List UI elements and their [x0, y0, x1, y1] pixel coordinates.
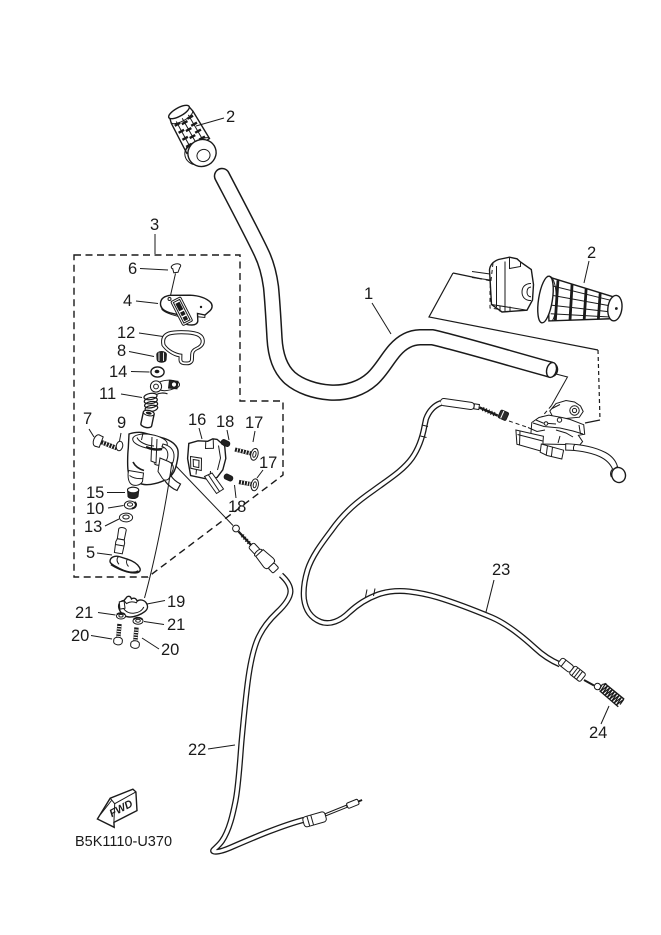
svg-text:10: 10 [86, 500, 104, 518]
svg-text:18: 18 [228, 498, 246, 516]
svg-text:8: 8 [117, 342, 126, 360]
svg-text:23: 23 [492, 561, 510, 579]
svg-text:4: 4 [123, 292, 132, 310]
svg-text:20: 20 [161, 641, 179, 659]
svg-text:5: 5 [86, 544, 95, 562]
svg-text:1: 1 [364, 285, 373, 303]
svg-text:20: 20 [71, 627, 89, 645]
svg-text:16: 16 [188, 411, 206, 429]
svg-text:14: 14 [109, 363, 127, 381]
svg-text:12: 12 [117, 324, 135, 342]
svg-text:18: 18 [216, 413, 234, 431]
svg-text:B5K1110-U370: B5K1110-U370 [75, 834, 172, 850]
svg-text:19: 19 [167, 593, 185, 611]
svg-text:6: 6 [128, 260, 137, 278]
svg-text:13: 13 [84, 518, 102, 536]
svg-text:22: 22 [188, 741, 206, 759]
svg-text:7: 7 [83, 410, 92, 428]
svg-text:17: 17 [245, 414, 263, 432]
svg-text:17: 17 [259, 454, 277, 472]
svg-text:21: 21 [75, 604, 93, 622]
svg-text:21: 21 [167, 616, 185, 634]
svg-text:2: 2 [226, 108, 235, 126]
svg-text:11: 11 [99, 385, 116, 403]
svg-text:3: 3 [150, 216, 159, 234]
svg-text:9: 9 [117, 414, 126, 432]
svg-text:24: 24 [589, 724, 607, 742]
svg-text:2: 2 [587, 244, 596, 262]
